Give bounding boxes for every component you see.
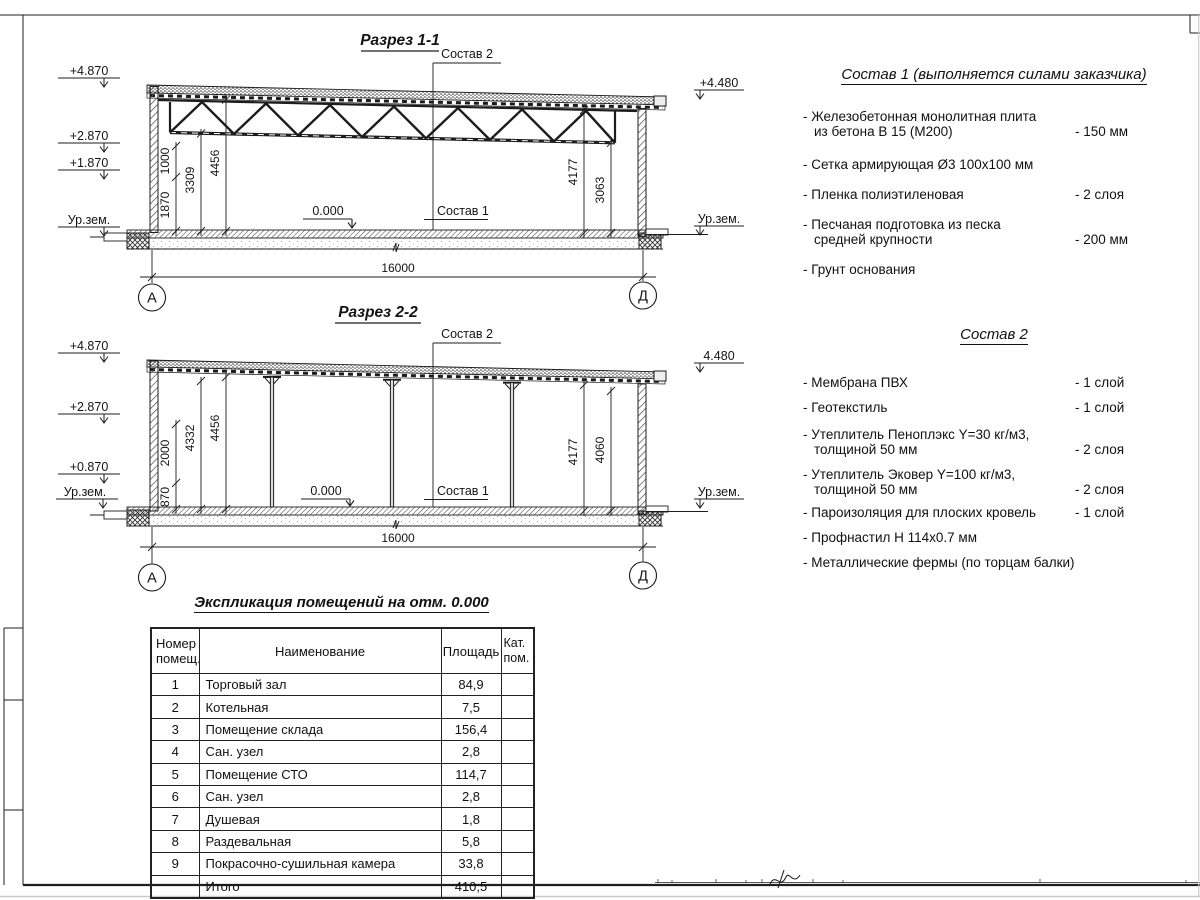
col-header-category: Кат. пом. — [501, 628, 534, 674]
col-header-name: Наименование — [199, 628, 441, 674]
svg-text:+0.870: +0.870 — [70, 460, 109, 474]
list-item: - Пароизоляция для плоских кровель - 1 с… — [803, 505, 1193, 520]
elevation-marks-left-2: +4.870 +2.870 +0.870 Ур.зем. — [56, 339, 120, 508]
col-header-area: Площадь — [441, 628, 501, 674]
cell-category — [501, 718, 534, 740]
dims-left-2: 870 2000 4332 4456 — [158, 373, 230, 514]
list-item: - Пленка полиэтиленовая - 2 слоя — [803, 187, 1193, 202]
cell-name: Итого — [199, 875, 441, 898]
cell-number: 3 — [151, 718, 199, 740]
svg-text:Ур.зем.: Ур.зем. — [698, 485, 740, 499]
cell-category — [501, 741, 534, 763]
cell-number: 2 — [151, 696, 199, 718]
floor-slab — [90, 229, 708, 252]
list-item: - Металлические фермы (по торцам балки) — [803, 555, 1193, 570]
cell-category — [501, 785, 534, 807]
table-row: 3 Помещение склада 156,4 — [151, 718, 534, 740]
axis-letter-d-2: Д — [638, 569, 648, 585]
cell-number: 6 — [151, 785, 199, 807]
list-item: - Утеплитель Пеноплэкс Y=30 кг/м3, толщи… — [803, 427, 1193, 457]
list-item: - Железобетонная монолитная плита из бет… — [803, 109, 1193, 139]
cell-name: Помещение склада — [199, 718, 441, 740]
zero-level-mark: 0.000 — [303, 204, 356, 228]
cell-area: 33,8 — [441, 853, 501, 875]
left-wall-2 — [150, 361, 158, 511]
svg-text:4332: 4332 — [183, 424, 197, 451]
svg-text:Ур.зем.: Ур.зем. — [698, 212, 740, 226]
roof-end-plate-2 — [654, 371, 666, 381]
cell-category — [501, 808, 534, 830]
elevation-marks-right: +4.480 Ур.зем. — [694, 76, 744, 235]
cell-area: 156,4 — [441, 718, 501, 740]
cell-number: 8 — [151, 830, 199, 852]
cell-area: 1,8 — [441, 808, 501, 830]
list-item: - Утеплитель Эковер Y=100 кг/м3, толщино… — [803, 467, 1193, 497]
dims-right: 4177 3063 — [566, 106, 615, 238]
svg-text:870: 870 — [158, 487, 172, 507]
svg-text:Состав 2: Состав 2 — [441, 327, 493, 341]
cell-category — [501, 830, 534, 852]
table-row: 7 Душевая 1,8 — [151, 808, 534, 830]
svg-text:4.480: 4.480 — [703, 349, 734, 363]
svg-text:16000: 16000 — [381, 531, 415, 545]
table-row-total: Итого 410,5 — [151, 875, 534, 898]
list-item: - Мембрана ПВХ - 1 слой — [803, 375, 1193, 390]
binding-margin-cells — [4, 628, 23, 885]
room-table-title: Экспликация помещений на отм. 0.000 — [150, 594, 533, 611]
cell-number: 1 — [151, 674, 199, 696]
section-1-1-title: Разрез 1-1 — [360, 32, 440, 49]
svg-text:0.000: 0.000 — [312, 204, 343, 218]
zero-level-mark-2: 0.000 — [301, 484, 354, 506]
dims-right-2: 4177 4060 — [566, 381, 615, 516]
drawing-sheet: Разрез 1-1 — [0, 0, 1200, 900]
right-wall-2 — [638, 384, 646, 514]
section-1-1: Разрез 1-1 — [58, 32, 744, 311]
axis-letter-a-2: А — [147, 571, 157, 587]
svg-text:4060: 4060 — [593, 436, 607, 463]
cell-number: 9 — [151, 853, 199, 875]
svg-text:+4.870: +4.870 — [70, 64, 109, 78]
table-row: 6 Сан. узел 2,8 — [151, 785, 534, 807]
svg-text:+4.870: +4.870 — [70, 339, 109, 353]
svg-text:16000: 16000 — [381, 261, 415, 275]
cell-name: Душевая — [199, 808, 441, 830]
svg-text:4456: 4456 — [208, 149, 222, 176]
cell-category — [501, 696, 534, 718]
svg-text:0.000: 0.000 — [310, 484, 341, 498]
axis-letter-a: А — [147, 291, 157, 307]
svg-text:Состав 1: Состав 1 — [437, 204, 489, 218]
roof-end-plate — [654, 96, 666, 106]
cell-name: Раздевальная — [199, 830, 441, 852]
svg-text:+2.870: +2.870 — [70, 129, 109, 143]
cell-name: Помещение СТО — [199, 763, 441, 785]
svg-text:Ур.зем.: Ур.зем. — [64, 485, 106, 499]
table-row: 9 Покрасочно-сушильная камера 33,8 — [151, 853, 534, 875]
composition-1-list: Состав 1 (выполняется силами заказчика) … — [795, 62, 1193, 302]
section-2-2: Разрез 2-2 — [56, 304, 744, 591]
svg-text:Состав 2: Состав 2 — [441, 47, 493, 61]
cell-name: Покрасочно-сушильная камера — [199, 853, 441, 875]
svg-text:+4.480: +4.480 — [700, 76, 739, 90]
cell-area: 5,8 — [441, 830, 501, 852]
svg-text:Состав 1: Состав 1 — [437, 484, 489, 498]
svg-text:4177: 4177 — [566, 158, 580, 185]
cell-number: 5 — [151, 763, 199, 785]
span-dim-2: 16000 А Д — [139, 527, 657, 591]
cell-name: Сан. узел — [199, 785, 441, 807]
left-wall — [150, 87, 158, 233]
list-item: - Грунт основания — [803, 262, 1193, 277]
cell-name: Сан. узел — [199, 741, 441, 763]
cell-area: 410,5 — [441, 875, 501, 898]
sostav-labels-2: Состав 2 Состав 1 — [424, 327, 501, 507]
elevation-marks-left: +4.870 +2.870 +1.870 Ур.зем. — [58, 64, 120, 236]
svg-text:1870: 1870 — [158, 191, 172, 218]
table-row: 4 Сан. узел 2,8 — [151, 741, 534, 763]
table-header-row: Номер помещ. Наименование Площадь Кат. п… — [151, 628, 534, 674]
section-2-2-title: Разрез 2-2 — [338, 304, 418, 321]
room-schedule-table: Номер помещ. Наименование Площадь Кат. п… — [150, 627, 535, 899]
floor-slab-2 — [90, 506, 708, 529]
table-row: 8 Раздевальная 5,8 — [151, 830, 534, 852]
cell-number: 4 — [151, 741, 199, 763]
cell-number: 7 — [151, 808, 199, 830]
svg-text:4456: 4456 — [208, 414, 222, 441]
cell-area: 7,5 — [441, 696, 501, 718]
svg-text:3063: 3063 — [593, 176, 607, 203]
composition-2-list: Состав 2 - Мембрана ПВХ - 1 слой - Геоте… — [795, 322, 1193, 582]
svg-text:Ур.зем.: Ур.зем. — [68, 213, 110, 227]
cell-number — [151, 875, 199, 898]
svg-text:2000: 2000 — [158, 439, 172, 466]
table-row: 1 Торговый зал 84,9 — [151, 674, 534, 696]
list-item: - Профнастил Н 114х0.7 мм — [803, 530, 1193, 545]
cell-area: 2,8 — [441, 741, 501, 763]
table-row: 2 Котельная 7,5 — [151, 696, 534, 718]
cell-category — [501, 763, 534, 785]
cell-area: 114,7 — [441, 763, 501, 785]
svg-text:+2.870: +2.870 — [70, 400, 109, 414]
right-wall — [638, 109, 646, 237]
cell-name: Торговый зал — [199, 674, 441, 696]
axis-letter-d: Д — [638, 289, 648, 305]
svg-text:4177: 4177 — [566, 438, 580, 465]
list-item: - Песчаная подготовка из песка средней к… — [803, 217, 1193, 247]
cell-area: 2,8 — [441, 785, 501, 807]
col-header-number: Номер помещ. — [151, 628, 199, 674]
cell-category — [501, 875, 534, 898]
dims-left: 1870 1000 3309 4456 — [158, 95, 230, 236]
svg-text:3309: 3309 — [183, 166, 197, 193]
table-row: 5 Помещение СТО 114,7 — [151, 763, 534, 785]
list-item: - Геотекстиль - 1 слой — [803, 400, 1193, 415]
cell-area: 84,9 — [441, 674, 501, 696]
span-dim: 16000 А Д — [139, 250, 657, 311]
composition-2-title: Состав 2 — [795, 326, 1193, 343]
elevation-marks-right-2: 4.480 Ур.зем. — [694, 349, 744, 508]
svg-text:+1.870: +1.870 — [70, 156, 109, 170]
cell-category — [501, 674, 534, 696]
list-item: - Сетка армирующая Ø3 100х100 мм — [803, 157, 1193, 172]
composition-1-title: Состав 1 (выполняется силами заказчика) — [795, 66, 1193, 83]
svg-text:1000: 1000 — [158, 147, 172, 174]
cell-name: Котельная — [199, 696, 441, 718]
cell-category — [501, 853, 534, 875]
